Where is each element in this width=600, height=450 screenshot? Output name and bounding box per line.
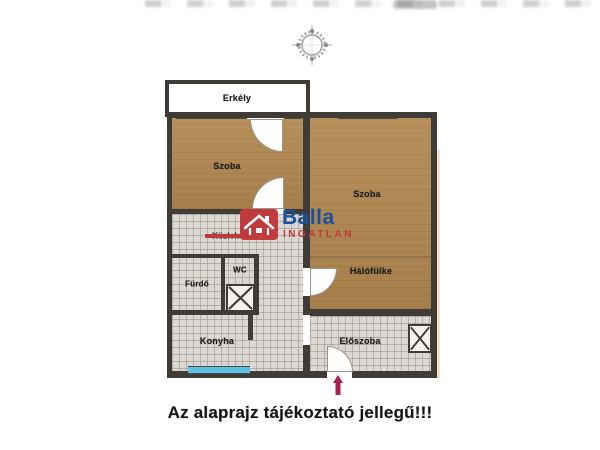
room-label-wc: WC	[233, 266, 247, 275]
alcove-boundary-line	[310, 256, 431, 258]
wardrobe-symbol	[408, 324, 432, 353]
disclaimer-text: Az alaprajz tájékoztató jellegű!!!	[0, 403, 600, 423]
wall-central-mid	[303, 296, 310, 315]
wall-bottom-right	[352, 371, 437, 378]
room-label-szoba-right: Szoba	[353, 189, 381, 199]
scan-edge-artifact	[437, 150, 440, 378]
wall-entrance-hall-top	[310, 309, 431, 316]
entrance-arrow-icon	[331, 375, 345, 399]
wall-bathroom-top	[172, 254, 258, 258]
svg-text:··: ··	[307, 44, 311, 50]
room-label-eloszoba: Előszoba	[339, 336, 380, 346]
balla-ingatlan-watermark: Balla INGATLAN	[205, 207, 355, 245]
room-label-halofulke: Hálófülke	[350, 266, 392, 276]
room-label-furdo: Fürdő	[185, 280, 209, 289]
logo-brand-text: Balla	[282, 206, 335, 230]
window-kitchen	[188, 366, 250, 374]
cropped-text-artifact	[393, 0, 437, 9]
logo-red-bar	[205, 234, 243, 238]
wall-wc-divider	[221, 258, 225, 315]
wall-central-bottom	[303, 345, 310, 378]
room-label-erkely: Erkély	[223, 93, 251, 103]
wall-top	[167, 112, 437, 118]
wall-kitchen-stub	[248, 315, 253, 340]
cropped-text-artifact	[145, 0, 595, 7]
compass-icon: ··	[290, 23, 334, 67]
wc-fixture-symbol	[226, 284, 255, 312]
room-label-konyha: Konyha	[200, 336, 234, 346]
room-label-szoba-left: Szoba	[213, 161, 241, 171]
wall-left	[167, 112, 172, 378]
floor-plan-image: ·· Erkély	[0, 0, 600, 450]
balla-house-icon	[240, 209, 278, 240]
logo-subtitle-text: INGATLAN	[283, 229, 354, 240]
